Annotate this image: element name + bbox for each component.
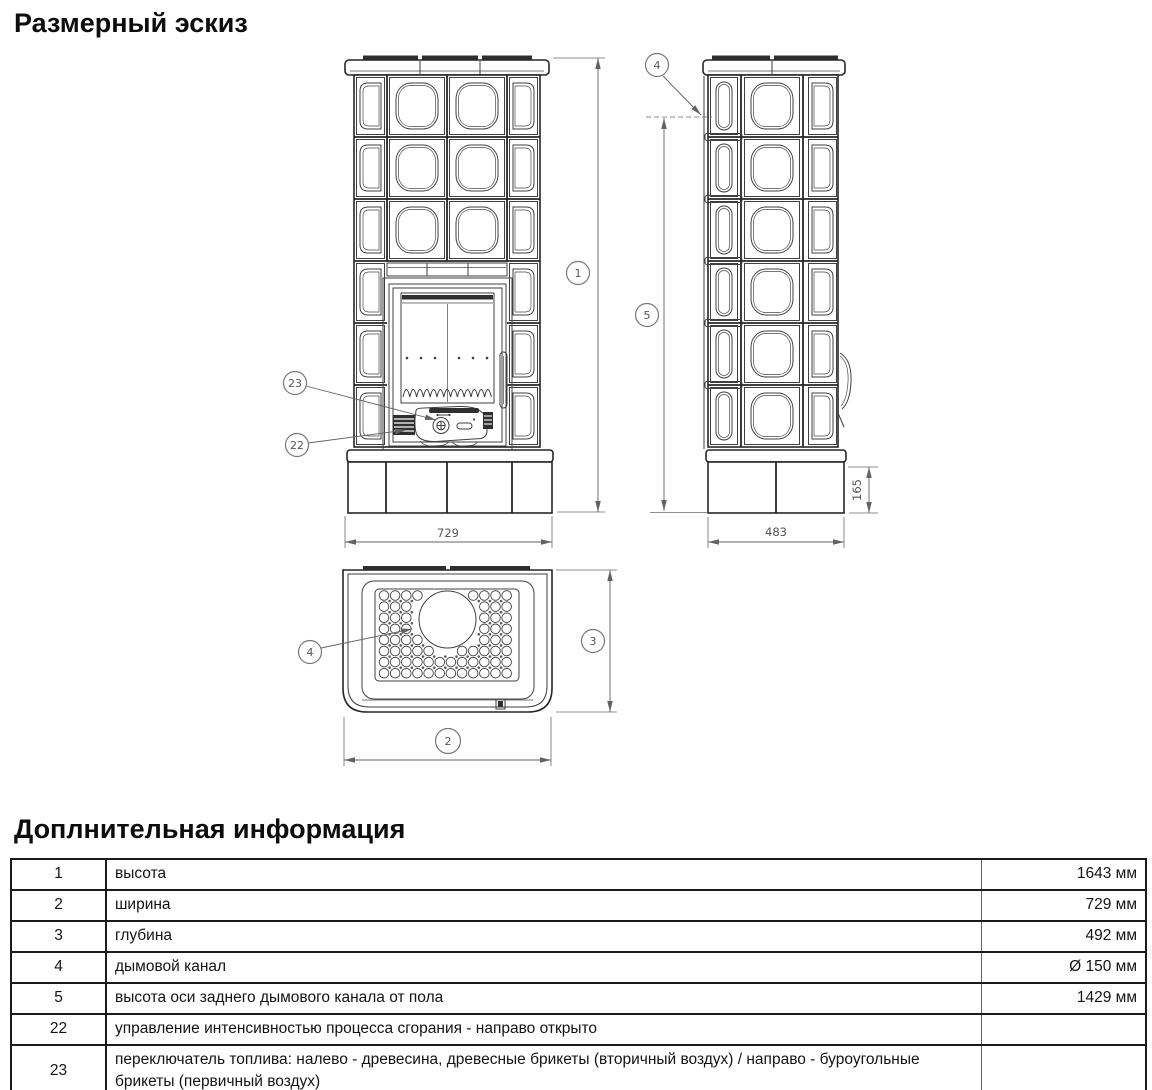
svg-text:1: 1: [575, 267, 582, 280]
row-number: 23: [11, 1045, 106, 1090]
callout-4-top: 4: [299, 641, 322, 664]
front-base-molding: [347, 450, 553, 462]
row-description: ширина: [106, 890, 981, 921]
dim-width-front: 729: [437, 526, 459, 540]
table-row: 4 дымовой канал Ø 150 мм: [11, 952, 1146, 983]
front-view: [345, 56, 553, 514]
row-description: управление интенсивностью процесса сгора…: [106, 1014, 981, 1045]
row-description: дымовой канал: [106, 952, 981, 983]
row-description: глубина: [106, 921, 981, 952]
callout-22: 22: [286, 434, 309, 457]
row-number: 5: [11, 983, 106, 1014]
row-value: [981, 1014, 1146, 1045]
svg-text:4: 4: [307, 646, 314, 659]
dim-base-height: 165: [850, 479, 864, 501]
side-view: [703, 56, 851, 514]
row-value: Ø 150 мм: [981, 952, 1146, 983]
svg-text:5: 5: [644, 309, 651, 322]
callout-5: 5: [636, 304, 659, 327]
svg-text:23: 23: [288, 377, 302, 390]
row-description: высота оси заднего дымового канала от по…: [106, 983, 981, 1014]
dimensional-sketch: 1 729 23 22 4 5: [0, 0, 1152, 800]
side-cornice: [703, 60, 845, 75]
section-title: Доплнительная информация: [14, 814, 405, 845]
table-row: 5 высота оси заднего дымового канала от …: [11, 983, 1146, 1014]
front-base: [348, 462, 552, 513]
callout-1: 1: [567, 262, 590, 285]
table-row: 1 высота 1643 мм: [11, 859, 1146, 890]
row-value: 492 мм: [981, 921, 1146, 952]
row-number: 2: [11, 890, 106, 921]
top-view: [343, 566, 552, 712]
front-cornice: [345, 60, 549, 75]
row-number: 22: [11, 1014, 106, 1045]
row-value: 729 мм: [981, 890, 1146, 921]
svg-text:4: 4: [654, 59, 661, 72]
air-grille-left: [393, 415, 415, 435]
row-description: переключатель топлива: налево - древесин…: [106, 1045, 981, 1090]
table-row: 22 управление интенсивностью процесса сг…: [11, 1014, 1146, 1045]
page: Размерный эскиз: [0, 0, 1152, 1090]
row-value: 1643 мм: [981, 859, 1146, 890]
door-handle-side: [838, 353, 851, 427]
svg-text:3: 3: [590, 635, 597, 648]
table-row: 3 глубина 492 мм: [11, 921, 1146, 952]
info-table: 1 высота 1643 мм 2 ширина 729 мм 3 глуби…: [10, 858, 1147, 1090]
row-value: 1429 мм: [981, 983, 1146, 1014]
callout-4-side: 4: [646, 54, 669, 77]
callout-3: 3: [582, 630, 605, 653]
table-row: 23 переключатель топлива: налево - древе…: [11, 1045, 1146, 1090]
side-base-molding: [706, 450, 846, 462]
row-value: [981, 1045, 1146, 1090]
callout-23: 23: [284, 372, 307, 395]
svg-text:2: 2: [445, 735, 452, 748]
table-row: 2 ширина 729 мм: [11, 890, 1146, 921]
row-number: 1: [11, 859, 106, 890]
row-number: 3: [11, 921, 106, 952]
dim-depth-side: 483: [765, 525, 787, 539]
row-description: высота: [106, 859, 981, 890]
row-number: 4: [11, 952, 106, 983]
svg-text:22: 22: [290, 439, 304, 452]
callout-2: 2: [436, 729, 461, 754]
